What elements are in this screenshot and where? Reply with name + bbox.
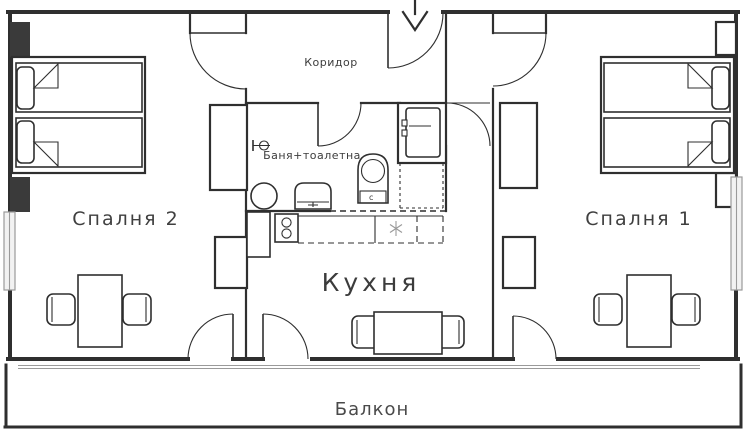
floor-plan: c [0, 0, 746, 431]
cabinet [215, 237, 247, 288]
balcony-label: Балкон [335, 399, 410, 420]
wall-pier [716, 22, 736, 55]
shower-cabin [398, 103, 446, 208]
stove [275, 214, 298, 242]
wall-pier [10, 22, 30, 57]
chair [123, 294, 151, 325]
bedroom2-wardrobes [210, 105, 247, 288]
wall-pier [10, 177, 30, 212]
water-heater-label: c [369, 193, 373, 202]
kitchen-table-set [352, 312, 464, 354]
kitchen-label: Кухня [322, 268, 421, 297]
corridor-label: Коридор [304, 56, 358, 69]
bathroom-door [318, 103, 361, 146]
chair [672, 294, 700, 325]
wardrobe [500, 103, 537, 188]
bedroom2-beds [12, 57, 145, 173]
bedroom1-wardrobes [500, 103, 537, 288]
entrance-arrow-icon [403, 0, 427, 30]
bedroom1-door [493, 33, 546, 86]
entrance-door [388, 13, 443, 68]
counter-return [247, 212, 270, 257]
fridge-snowflake-icon [390, 221, 402, 236]
pillow [17, 121, 34, 163]
bedroom1-table-set [594, 275, 700, 347]
bedroom1-label: Спалня 1 [585, 208, 692, 230]
table [78, 275, 122, 347]
hallway-door [447, 103, 490, 146]
kitchen-counter [247, 212, 443, 257]
table [627, 275, 671, 347]
wardrobe [210, 105, 247, 190]
bedroom2-label: Спалня 2 [72, 208, 179, 230]
bedroom1-beds [601, 57, 734, 173]
bathroom-label: Баня+тоалетна [263, 149, 361, 162]
chair [47, 294, 75, 325]
upper-cabinets [298, 216, 443, 243]
bedroom2-table-set [47, 275, 151, 347]
sink [251, 183, 277, 209]
floor-plan-drawing: c [0, 0, 746, 431]
shower-tray [400, 163, 443, 208]
table [374, 312, 442, 354]
pillow [17, 67, 34, 109]
pillow [712, 121, 729, 163]
kitchen-balcony-door [263, 314, 308, 359]
bedroom1-balcony-door [513, 316, 556, 359]
pillow [712, 67, 729, 109]
water-heater: c [358, 154, 388, 203]
cabinet [503, 237, 535, 288]
balcony-railing [18, 366, 700, 369]
chair [594, 294, 622, 325]
bedroom2-balcony-door [188, 314, 233, 359]
bedroom2-door [190, 33, 246, 89]
